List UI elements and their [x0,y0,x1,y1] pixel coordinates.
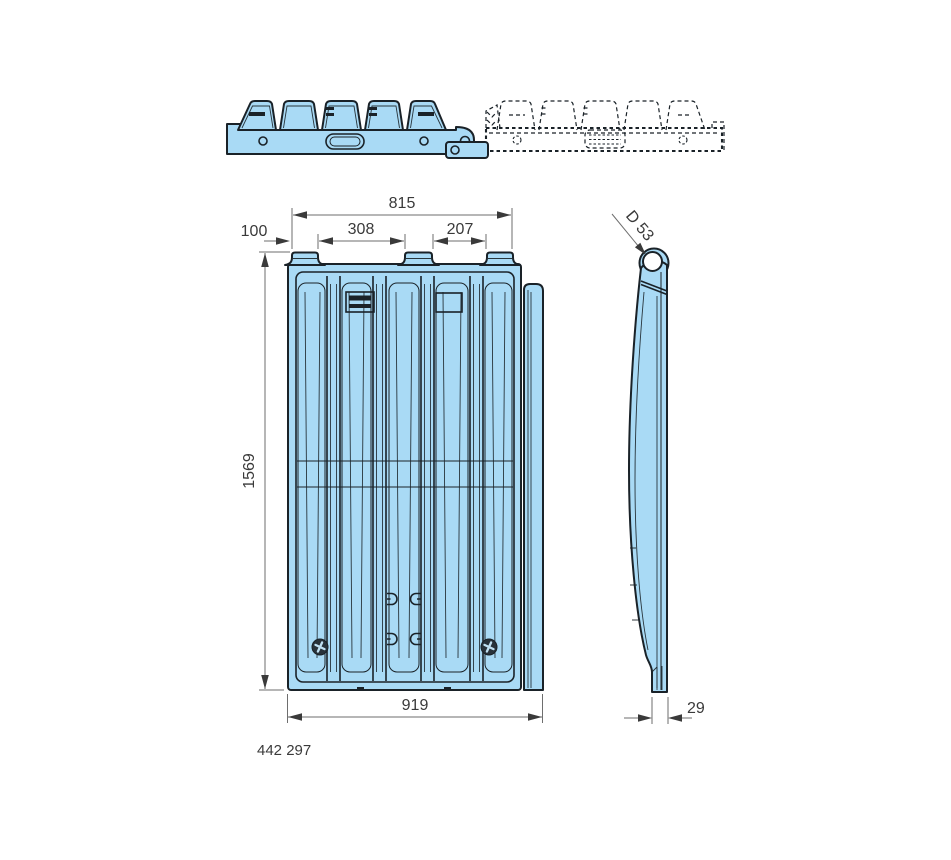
dim-bottom-overall-label: 919 [402,697,429,714]
dim-100: 100 [241,223,290,245]
hinge-chevrons [487,112,497,125]
dim-top-overall-label: 815 [389,195,416,212]
dashed-rail-hole-left [513,136,521,144]
screw-right [481,639,497,655]
top-view-closed [227,101,474,154]
edge-strip [524,284,543,690]
dim-tab-width-label: 100 [241,223,268,240]
dim-height-label: 1569 [241,453,258,489]
screw-left [312,639,328,655]
dim-919: 919 [288,694,543,723]
dim-thickness-label: 29 [687,700,705,717]
dim-hinge-hole-label: D 53 [622,208,657,245]
dim-308: 308 [318,221,405,249]
top-view-open-dashed [486,101,724,151]
side-view [629,249,669,693]
hinge-pin-piece [446,142,488,158]
part-number: 442 297 [257,742,311,759]
dim-gap-right-label: 207 [447,221,474,238]
dim-29: 29 [624,697,705,724]
technical-drawing-canvas: 815 100 308 207 1569 919 [0,0,951,860]
dashed-bumps [497,101,705,130]
lid-body [288,264,521,690]
front-view [285,253,543,691]
dashed-rail-hole-right [679,136,687,144]
dim-1569: 1569 [241,252,290,690]
lid-technical-drawing: 815 100 308 207 1569 919 [0,0,951,860]
dim-207: 207 [433,221,486,249]
dim-gap-left-label: 308 [348,221,375,238]
